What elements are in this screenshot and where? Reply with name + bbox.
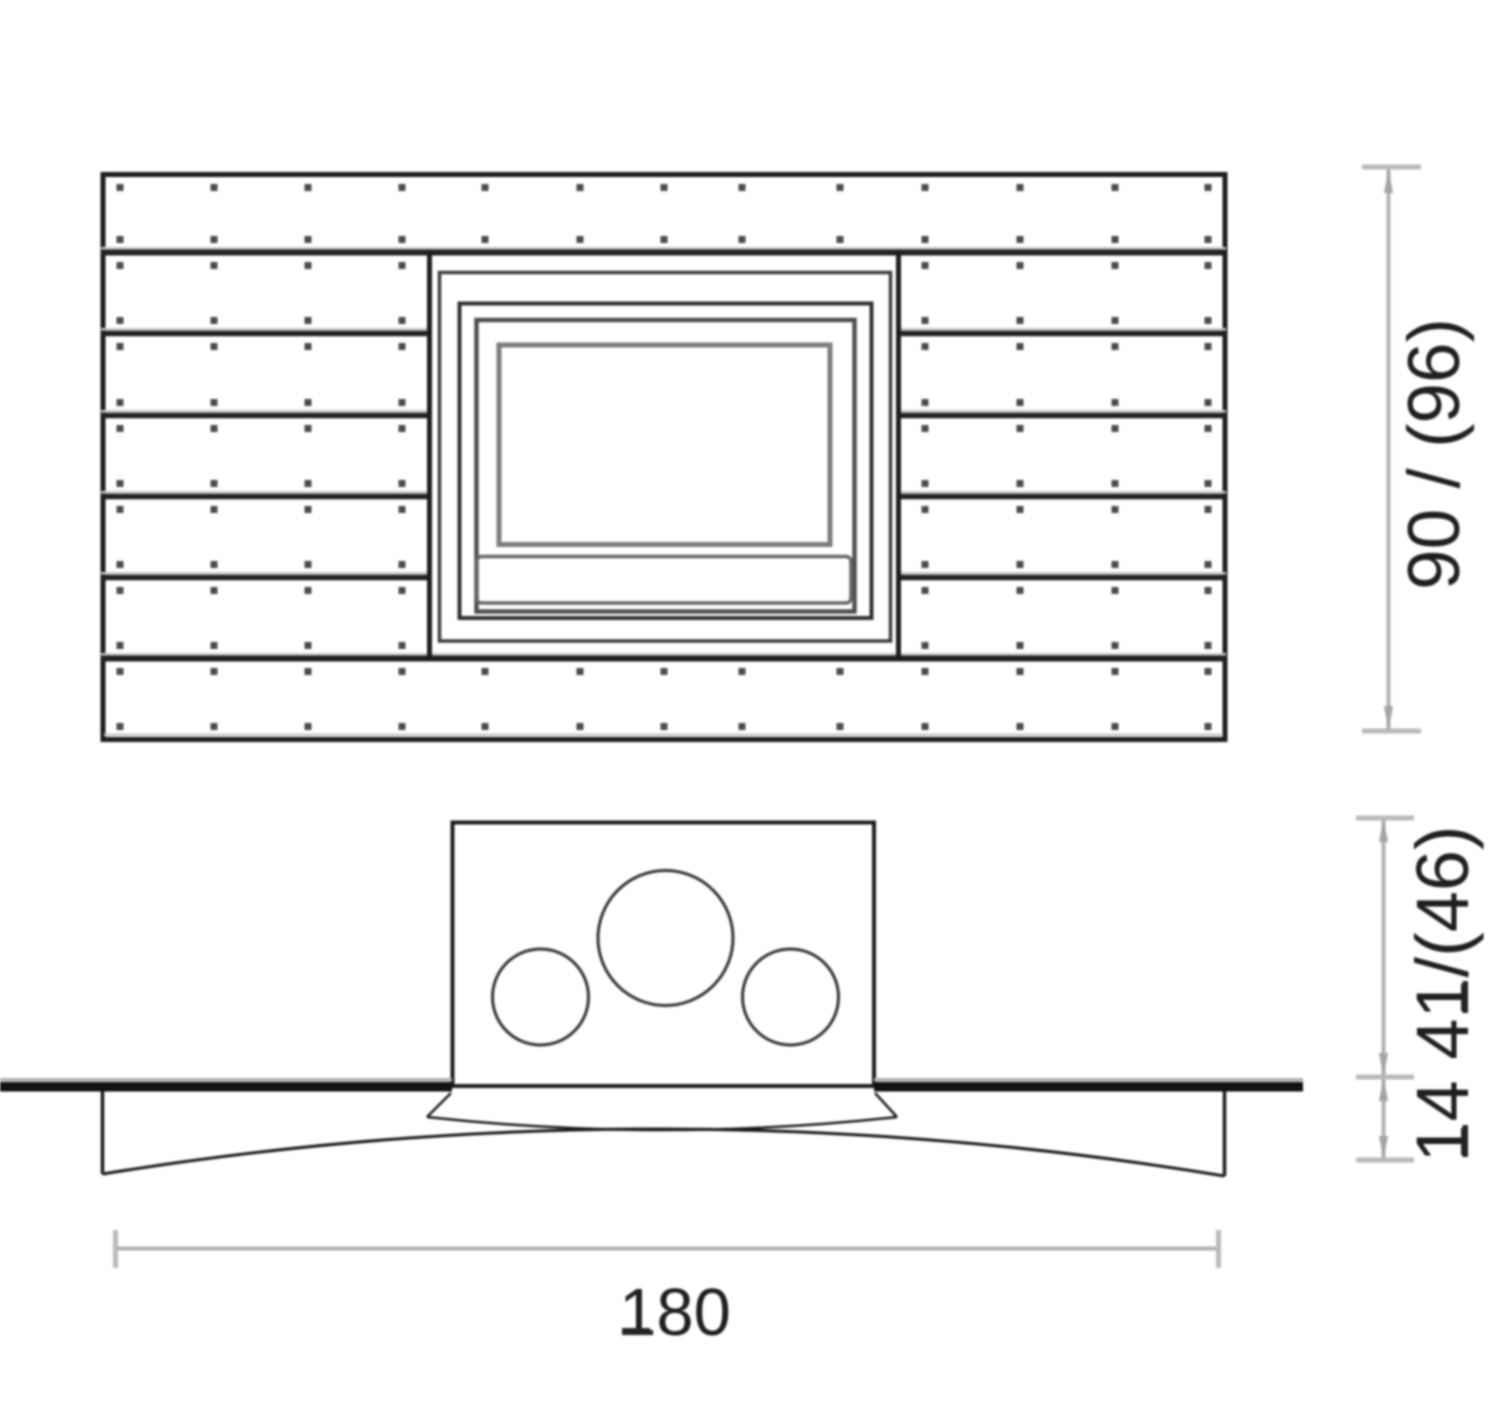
svg-text:180: 180	[619, 1275, 731, 1350]
svg-text:90 / (96): 90 / (96)	[1394, 318, 1475, 590]
svg-text:14 41/(46): 14 41/(46)	[1401, 825, 1484, 1162]
